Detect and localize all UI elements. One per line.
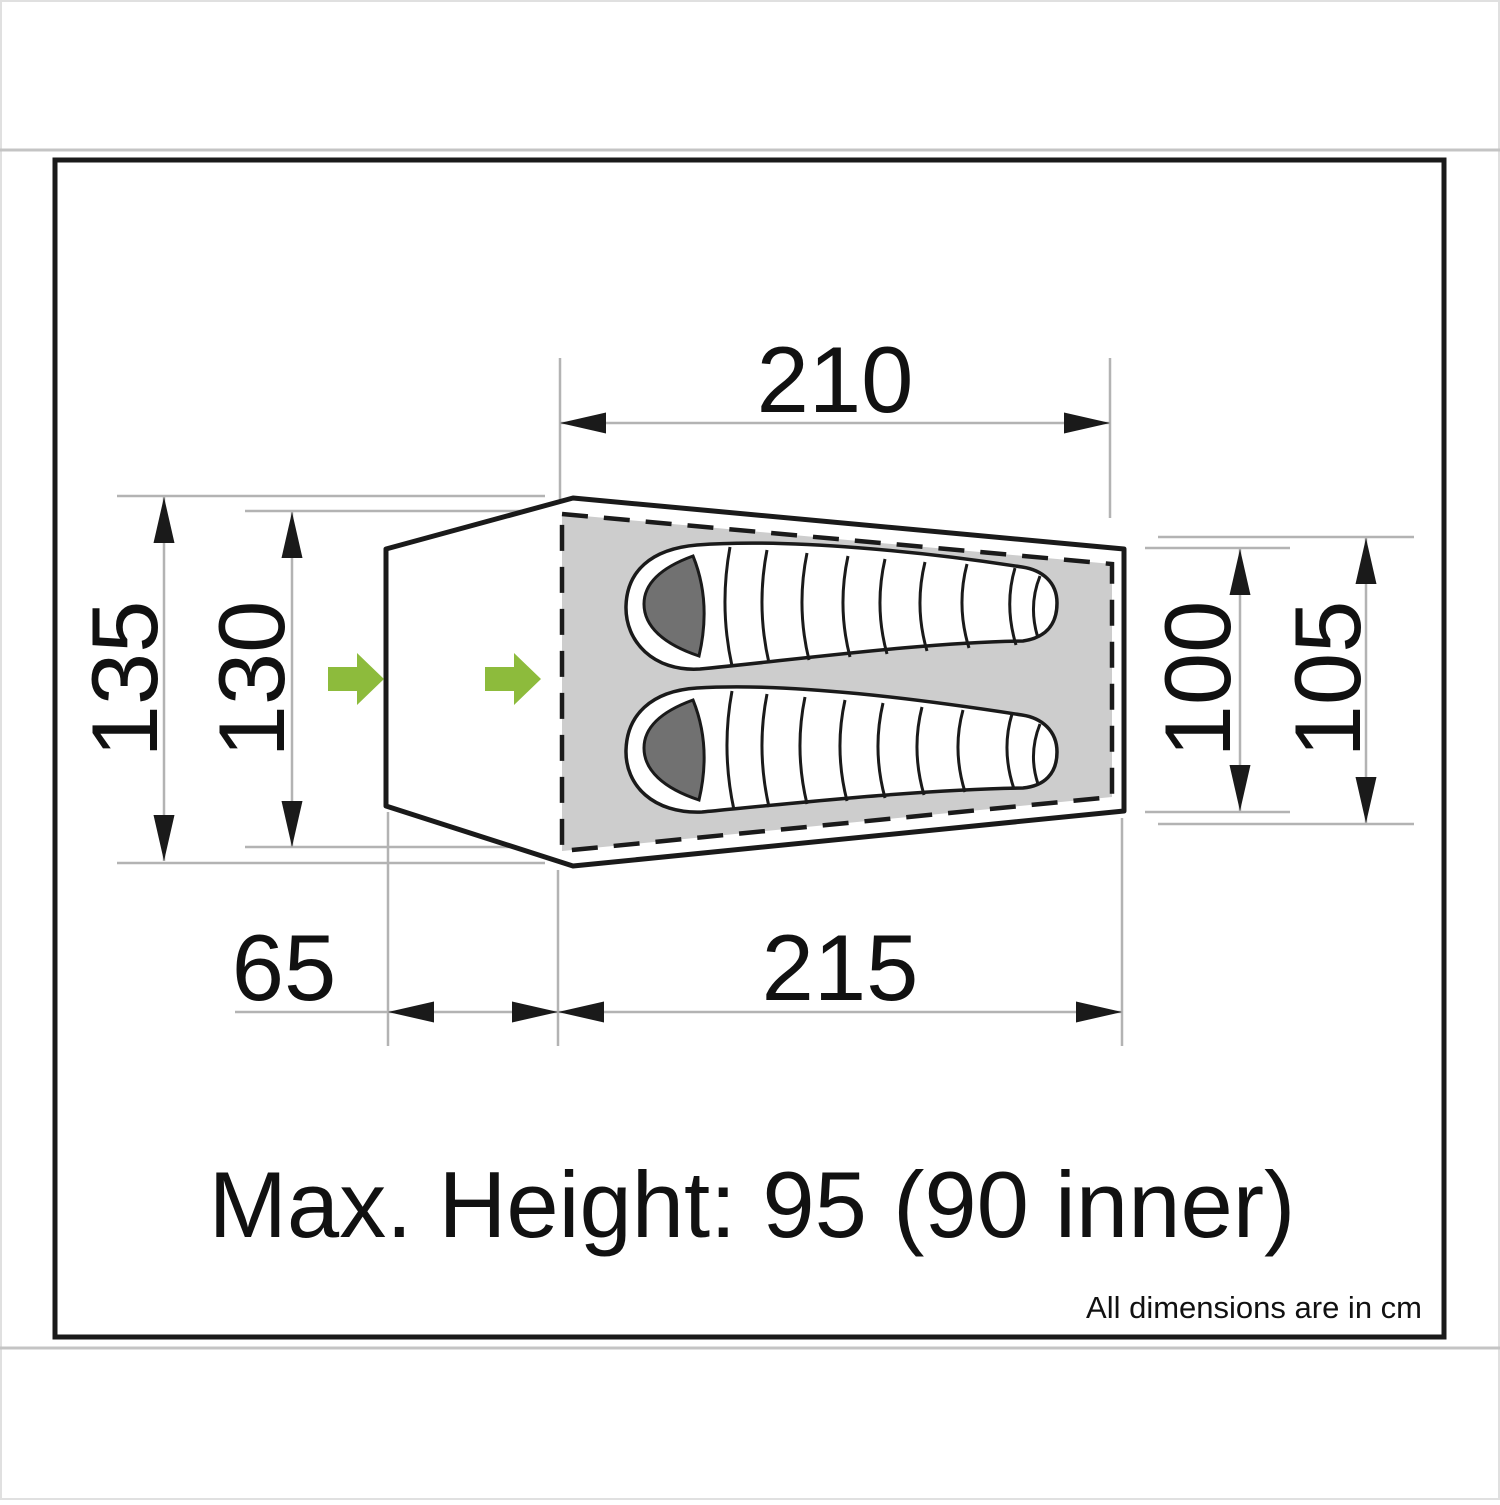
arrow-65-right bbox=[512, 1002, 558, 1023]
units-note: All dimensions are in cm bbox=[1086, 1290, 1422, 1325]
arrow-130-bottom bbox=[282, 801, 303, 847]
arrow-130-top bbox=[282, 512, 303, 558]
tent-top-view bbox=[328, 498, 1124, 866]
arrow-215-right bbox=[1076, 1002, 1122, 1023]
arrow-215-left bbox=[558, 1002, 604, 1023]
dim-label-right-outer-width: 105 bbox=[1275, 601, 1380, 758]
arrow-210-left bbox=[560, 413, 606, 434]
arrow-105-top bbox=[1356, 538, 1377, 584]
dim-label-right-inner-width: 100 bbox=[1145, 601, 1250, 758]
entrance-arrow-right-icon bbox=[328, 653, 384, 705]
tent-dimension-diagram: 210 65 215 135 130 100 105 Max. Height: … bbox=[0, 0, 1500, 1500]
dim-label-left-inner-width: 130 bbox=[199, 601, 304, 758]
arrow-65-left bbox=[388, 1002, 434, 1023]
arrow-100-top bbox=[1230, 549, 1251, 595]
dim-label-porch-depth: 65 bbox=[232, 915, 337, 1020]
dim-label-floor-length: 215 bbox=[762, 915, 919, 1020]
max-height-note: Max. Height: 95 (90 inner) bbox=[209, 1152, 1296, 1257]
arrow-210-right bbox=[1064, 413, 1110, 434]
diagram-svg: 210 65 215 135 130 100 105 Max. Height: … bbox=[0, 0, 1500, 1500]
dim-label-top-length: 210 bbox=[757, 327, 914, 432]
dim-label-left-outer-width: 135 bbox=[72, 601, 177, 758]
arrow-105-bottom bbox=[1356, 777, 1377, 823]
arrow-135-bottom bbox=[154, 815, 175, 861]
arrow-100-bottom bbox=[1230, 765, 1251, 811]
arrow-135-top bbox=[154, 497, 175, 543]
